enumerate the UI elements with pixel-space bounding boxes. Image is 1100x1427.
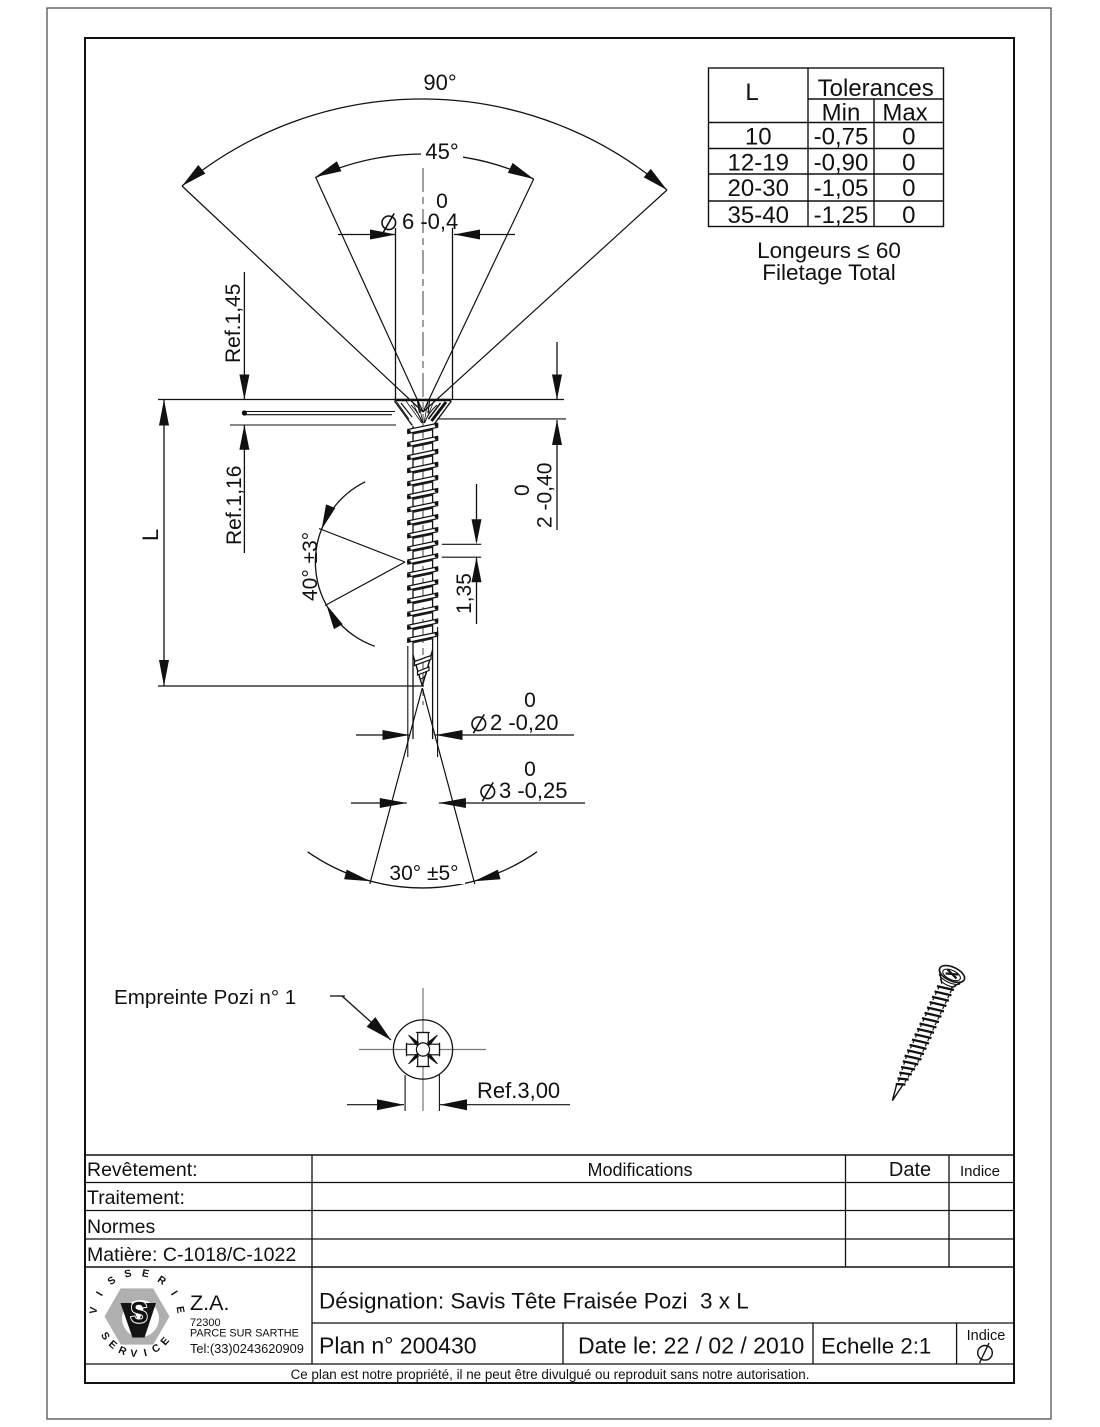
svg-text:45°: 45° xyxy=(425,139,458,164)
svg-text:0: 0 xyxy=(902,175,915,202)
svg-text:Modifications: Modifications xyxy=(587,1160,692,1180)
svg-text:R: R xyxy=(155,1274,168,1288)
svg-text:0: 0 xyxy=(902,202,915,229)
svg-text:12-19: 12-19 xyxy=(728,150,789,177)
svg-text:6 -0,4: 6 -0,4 xyxy=(402,209,458,234)
svg-text:0: 0 xyxy=(902,124,915,151)
svg-text:Max: Max xyxy=(882,100,927,127)
svg-text:35-40: 35-40 xyxy=(728,202,789,229)
svg-text:40° ±3°: 40° ±3° xyxy=(299,532,322,601)
svg-text:I: I xyxy=(168,1289,180,1298)
svg-text:Tel:(33)0243620909: Tel:(33)0243620909 xyxy=(190,1341,304,1356)
svg-text:Date: Date xyxy=(889,1159,931,1181)
svg-text:Désignation: Savis Tête Fraisé: Désignation: Savis Tête Fraisée Pozi 3 x… xyxy=(319,1289,749,1314)
svg-text:Filetage Total: Filetage Total xyxy=(762,260,895,285)
svg-text:Date le: 22 / 02 / 2010: Date le: 22 / 02 / 2010 xyxy=(578,1333,804,1359)
svg-text:Normes: Normes xyxy=(87,1216,156,1238)
svg-text:90°: 90° xyxy=(423,70,456,95)
svg-text:V: V xyxy=(87,1306,100,1315)
svg-text:Indice: Indice xyxy=(967,1328,1006,1344)
svg-text:3 -0,25: 3 -0,25 xyxy=(499,778,568,803)
svg-text:Traitement:: Traitement: xyxy=(87,1187,185,1209)
svg-text:0: 0 xyxy=(511,484,534,496)
svg-text:E: E xyxy=(158,1335,172,1348)
svg-text:30° ±5°: 30° ±5° xyxy=(389,862,458,885)
svg-text:E: E xyxy=(106,1338,119,1352)
svg-text:0: 0 xyxy=(902,150,915,177)
svg-text:Min: Min xyxy=(822,100,861,127)
svg-text:V: V xyxy=(130,1348,138,1361)
svg-text:S: S xyxy=(130,1295,148,1329)
svg-text:-0,90: -0,90 xyxy=(814,150,869,177)
svg-text:-0,75: -0,75 xyxy=(814,124,869,151)
svg-text:2 -0,40: 2 -0,40 xyxy=(534,463,557,528)
svg-text:E: E xyxy=(173,1305,186,1314)
svg-text:20-30: 20-30 xyxy=(728,175,789,202)
svg-text:Revêtement:: Revêtement: xyxy=(87,1159,198,1181)
svg-text:Ref.1,45: Ref.1,45 xyxy=(222,284,245,363)
svg-text:E: E xyxy=(141,1267,150,1280)
svg-text:S: S xyxy=(123,1267,132,1280)
svg-text:-1,25: -1,25 xyxy=(814,202,869,229)
svg-text:Plan n° 200430: Plan n° 200430 xyxy=(319,1333,477,1359)
svg-text:Empreinte Pozi n° 1: Empreinte Pozi n° 1 xyxy=(114,986,296,1009)
svg-text:Matière: C-1018/C-1022: Matière: C-1018/C-1022 xyxy=(87,1244,296,1266)
svg-text:S: S xyxy=(105,1274,118,1288)
svg-text:Indice: Indice xyxy=(960,1163,1000,1180)
svg-text:Echelle 2:1: Echelle 2:1 xyxy=(821,1334,931,1359)
svg-text:10: 10 xyxy=(745,124,772,151)
svg-text:Z.A.: Z.A. xyxy=(190,1291,229,1315)
svg-text:R: R xyxy=(117,1344,129,1358)
svg-text:PARCE SUR SARTHE: PARCE SUR SARTHE xyxy=(190,1328,299,1340)
svg-text:2 -0,20: 2 -0,20 xyxy=(490,710,559,735)
svg-text:I: I xyxy=(94,1290,106,1299)
svg-text:I: I xyxy=(143,1347,149,1359)
svg-text:Tolerances: Tolerances xyxy=(818,75,934,102)
svg-text:1,35: 1,35 xyxy=(453,573,476,614)
svg-text:L: L xyxy=(138,529,163,541)
svg-text:-1,05: -1,05 xyxy=(814,175,869,202)
svg-text:S: S xyxy=(98,1330,112,1342)
svg-text:L: L xyxy=(745,79,758,106)
svg-text:0: 0 xyxy=(524,689,536,712)
svg-text:Ce plan est notre propriété, i: Ce plan est notre propriété, il ne peut … xyxy=(291,1367,810,1382)
svg-text:Ref.1,16: Ref.1,16 xyxy=(223,466,246,545)
svg-text:Ref.3,00: Ref.3,00 xyxy=(477,1078,560,1103)
